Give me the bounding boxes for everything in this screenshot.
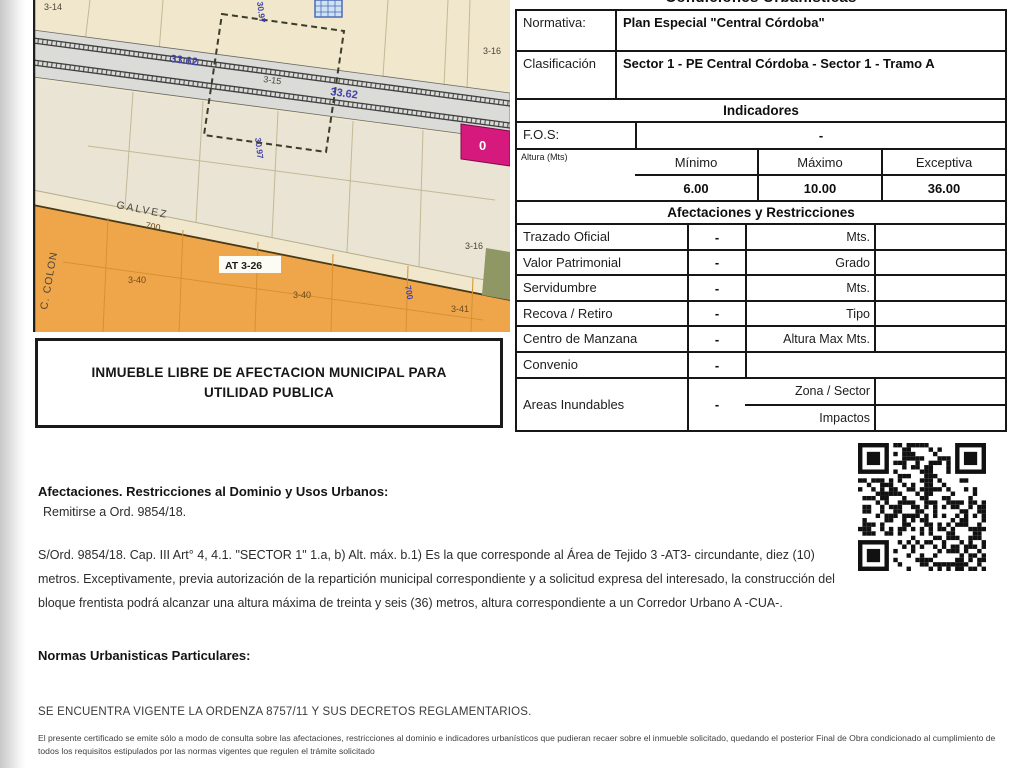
indicadores-header: Indicadores <box>517 98 1005 121</box>
green-parcel <box>482 248 510 300</box>
row-trazado-oficial: Trazado Oficial - Mts. <box>517 223 1005 249</box>
table-clipped-header: Condiciones Urbanísticas <box>515 0 1007 9</box>
cadastral-map: 0 3-14 33.62 33.62 3-15 3-16 3-16 30.97 … <box>33 0 510 332</box>
magenta-parcel: 0 <box>461 124 510 166</box>
section-title-afectaciones: Afectaciones. Restricciones al Dominio y… <box>38 484 388 499</box>
areas-impactos: Impactos <box>745 404 1005 431</box>
parcel-label: 3-41 <box>451 304 469 314</box>
empty-cell <box>874 406 1005 431</box>
disclaimer-fine-print: El presente certificado se emite sólo a … <box>38 732 1010 758</box>
blue-hatched-square <box>315 0 342 17</box>
afectaciones-reference: Remitirse a Ord. 9854/18. <box>43 505 186 519</box>
section-title-normas: Normas Urbanisticas Particulares: <box>38 648 250 663</box>
empty-cell <box>874 276 1005 300</box>
row-centro-manzana: Centro de Manzana - Altura Max Mts. <box>517 325 1005 351</box>
magenta-parcel-label: 0 <box>479 138 486 153</box>
parcel-label: 3-14 <box>44 2 62 12</box>
empty-cell <box>874 379 1005 404</box>
urban-conditions-table: Condiciones Urbanísticas Normativa: Plan… <box>515 0 1007 432</box>
fos-label: F.O.S: <box>517 123 635 148</box>
areas-zona-sector: Zona / Sector <box>745 379 1005 404</box>
parcel-label: 3-16 <box>465 241 483 251</box>
row-clasificacion: Clasificación Sector 1 - PE Central Córd… <box>517 50 1005 98</box>
altura-min-header: Mínimo <box>635 150 757 174</box>
parcel-label: 3-40 <box>128 275 146 285</box>
altura-label: Altura (Mts) <box>517 150 635 200</box>
row-recova-retiro: Recova / Retiro - Tipo <box>517 300 1005 325</box>
empty-cell <box>874 302 1005 325</box>
municipal-clearance-box: INMUEBLE LIBRE DE AFECTACION MUNICIPAL P… <box>35 338 503 428</box>
scan-edge <box>0 0 26 768</box>
parcel-label: 3-16 <box>483 46 501 56</box>
altura-min-value: 6.00 <box>635 176 757 200</box>
afectaciones-header: Afectaciones y Restricciones <box>517 200 1005 223</box>
empty-cell <box>745 353 1005 377</box>
altura-exc-value: 36.00 <box>881 176 1005 200</box>
normativa-value: Plan Especial "Central Córdoba" <box>615 11 1005 50</box>
altura-max-value: 10.00 <box>757 176 881 200</box>
row-servidumbre: Servidumbre - Mts. <box>517 274 1005 300</box>
row-areas-inundables: Areas Inundables - Zona / Sector Impacto… <box>517 377 1005 430</box>
empty-cell <box>874 251 1005 274</box>
zone-tag-label: AT 3-26 <box>225 260 262 272</box>
qr-code <box>858 443 986 571</box>
municipal-clearance-text: INMUEBLE LIBRE DE AFECTACION MUNICIPAL P… <box>66 363 473 403</box>
vigente-statement: SE ENCUENTRA VIGENTE LA ORDENZA 8757/11 … <box>38 706 532 718</box>
fos-value: - <box>635 123 1005 148</box>
ordinance-paragraph: S/Ord. 9854/18. Cap. III Art° 4, 4.1. "S… <box>38 543 856 615</box>
row-fos: F.O.S: - <box>517 121 1005 148</box>
map-canvas: 0 3-14 33.62 33.62 3-15 3-16 3-16 30.97 … <box>33 0 510 332</box>
parcel-label: 3-40 <box>293 290 311 300</box>
altura-exc-header: Exceptiva <box>881 150 1005 174</box>
row-altura: Altura (Mts) Mínimo Máximo Exceptiva 6.0… <box>517 148 1005 200</box>
zone-tag: AT 3-26 <box>219 256 281 273</box>
clasificacion-value: Sector 1 - PE Central Córdoba - Sector 1… <box>615 52 1005 98</box>
normativa-label: Normativa: <box>517 11 615 50</box>
empty-cell <box>874 327 1005 351</box>
clasificacion-label: Clasificación <box>517 52 615 98</box>
row-convenio: Convenio - <box>517 351 1005 377</box>
row-normativa: Normativa: Plan Especial "Central Córdob… <box>517 11 1005 50</box>
altura-values: 6.00 10.00 36.00 <box>635 174 1005 200</box>
row-valor-patrimonial: Valor Patrimonial - Grado <box>517 249 1005 274</box>
altura-max-header: Máximo <box>757 150 881 174</box>
empty-cell <box>874 225 1005 249</box>
altura-headers: Mínimo Máximo Exceptiva <box>635 150 1005 174</box>
